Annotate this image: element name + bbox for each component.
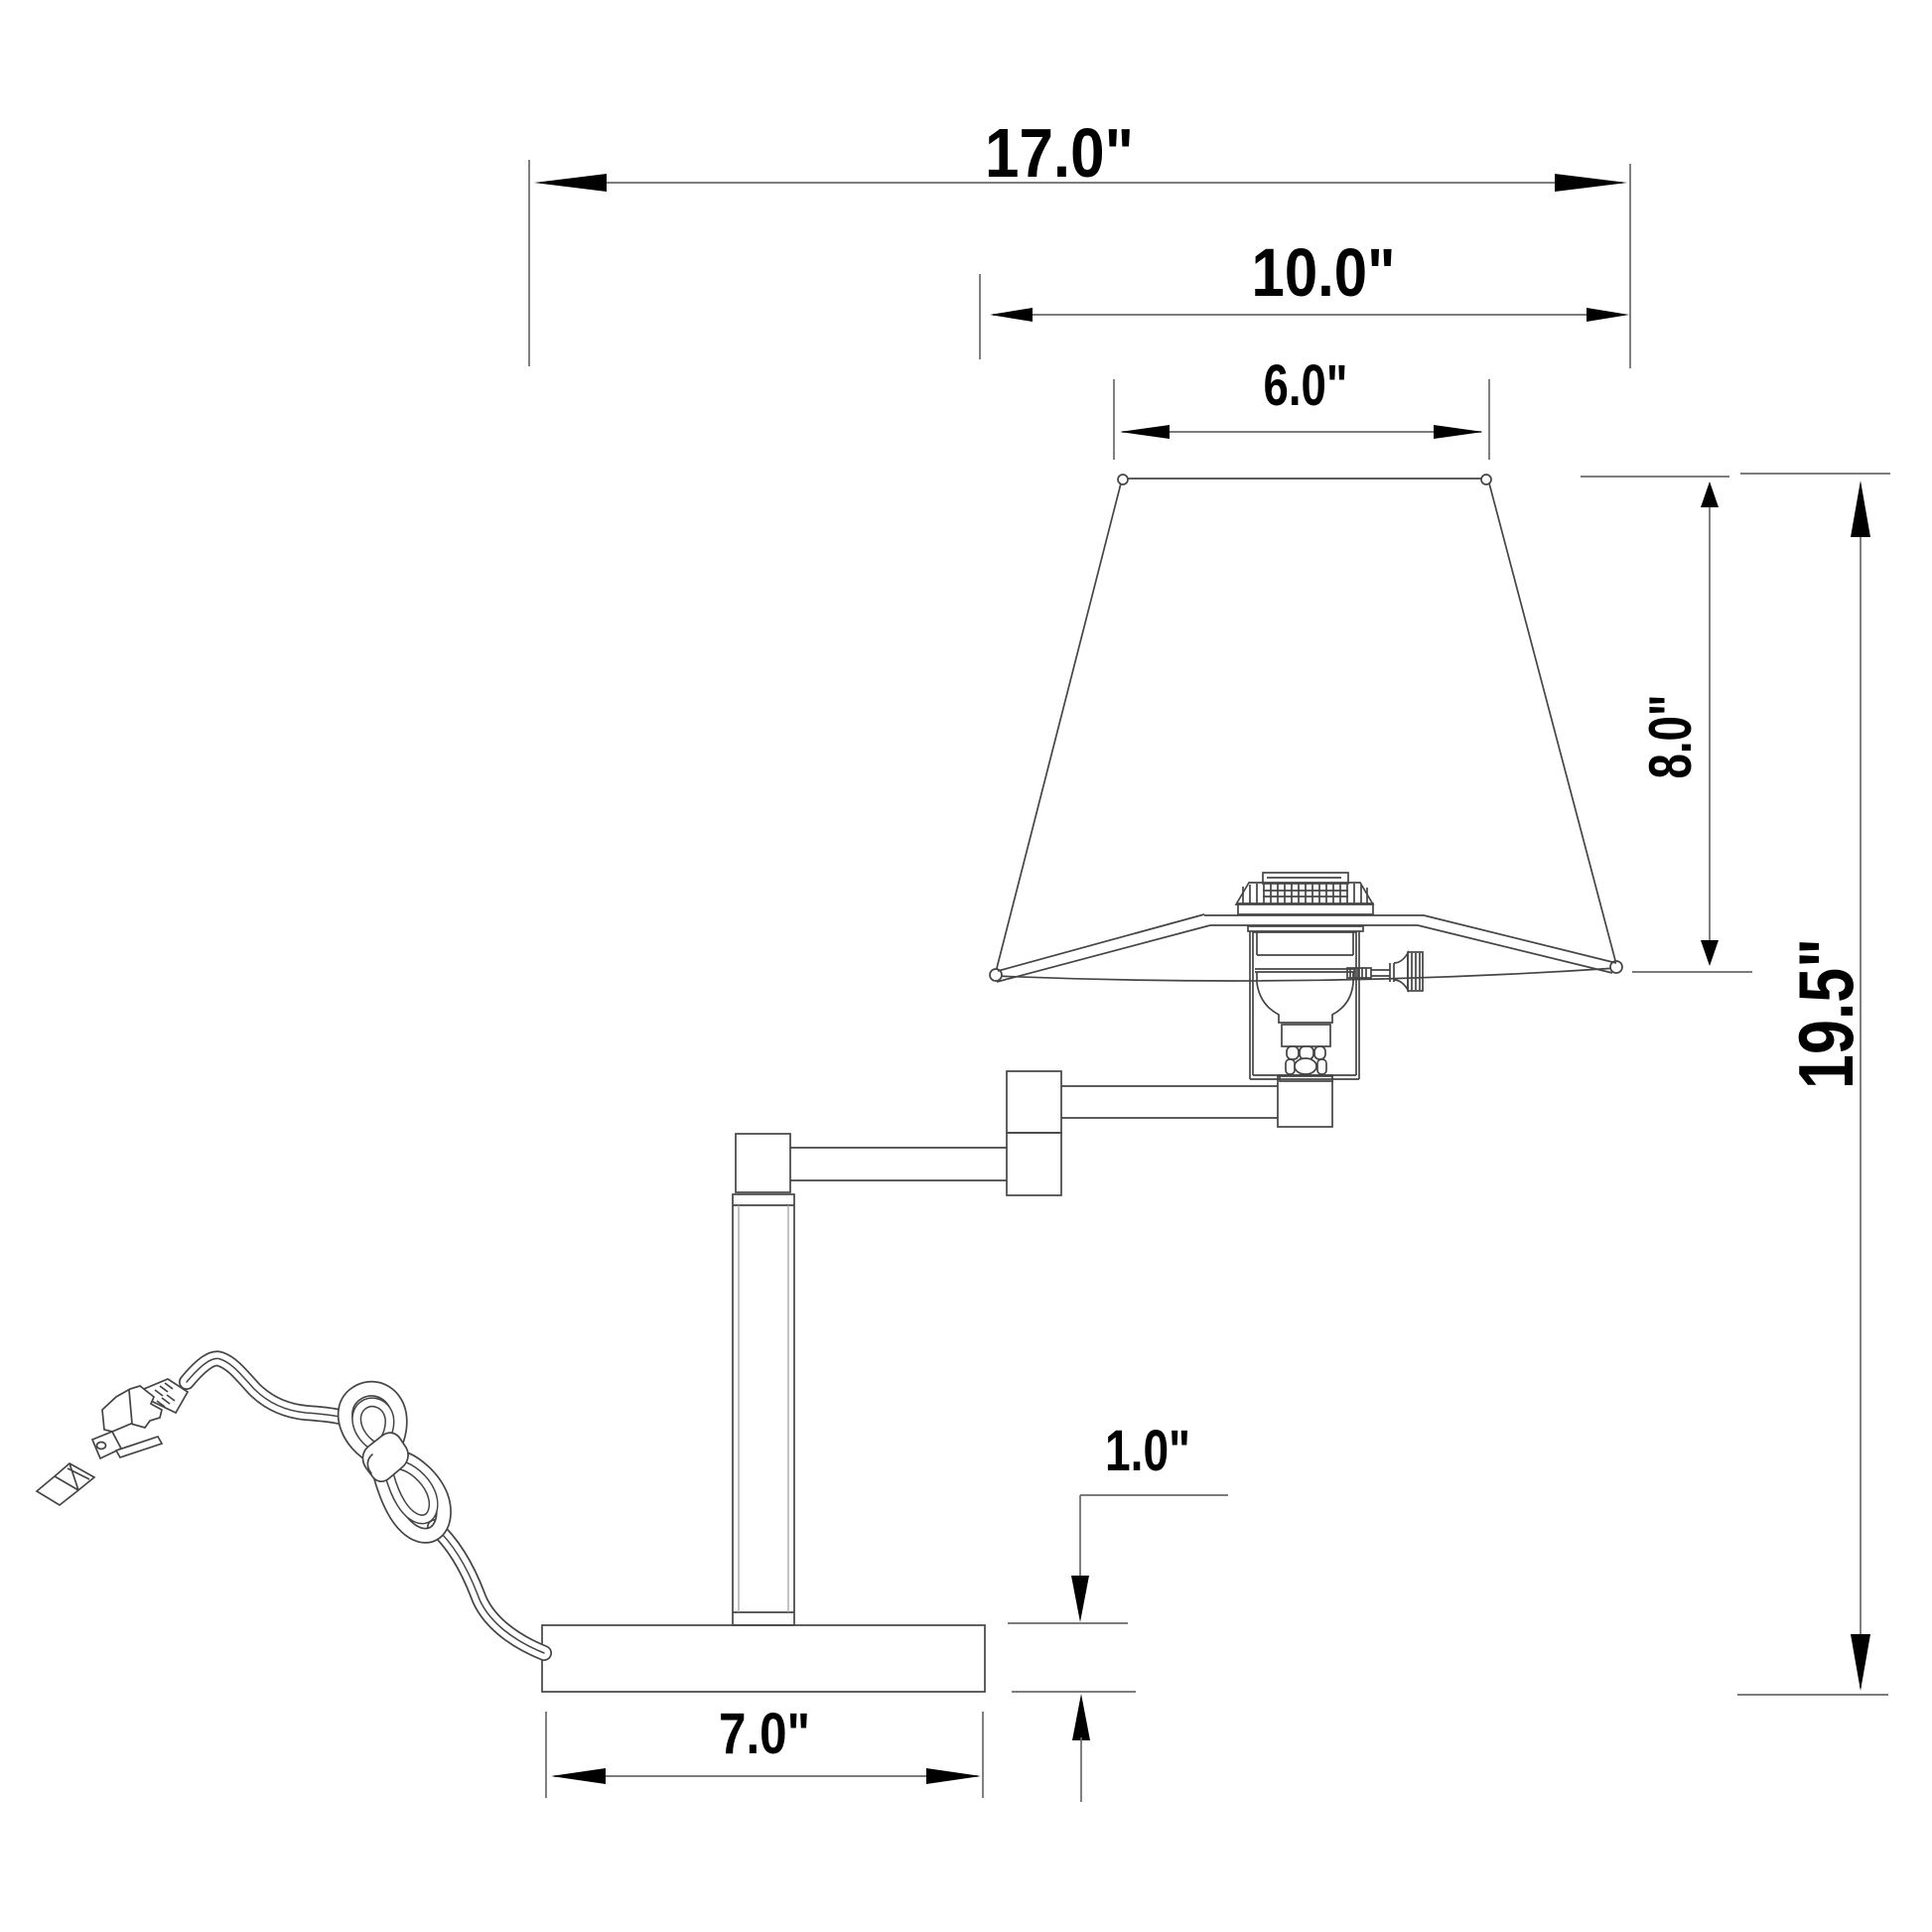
svg-text:10.0": 10.0": [1252, 234, 1396, 311]
svg-text:17.0": 17.0": [985, 115, 1134, 193]
svg-text:8.0": 8.0": [1638, 695, 1704, 779]
svg-text:6.0": 6.0": [1264, 354, 1348, 418]
svg-text:7.0": 7.0": [719, 1702, 810, 1766]
svg-text:1.0": 1.0": [1105, 1420, 1190, 1483]
svg-text:19.5": 19.5": [1784, 938, 1870, 1089]
